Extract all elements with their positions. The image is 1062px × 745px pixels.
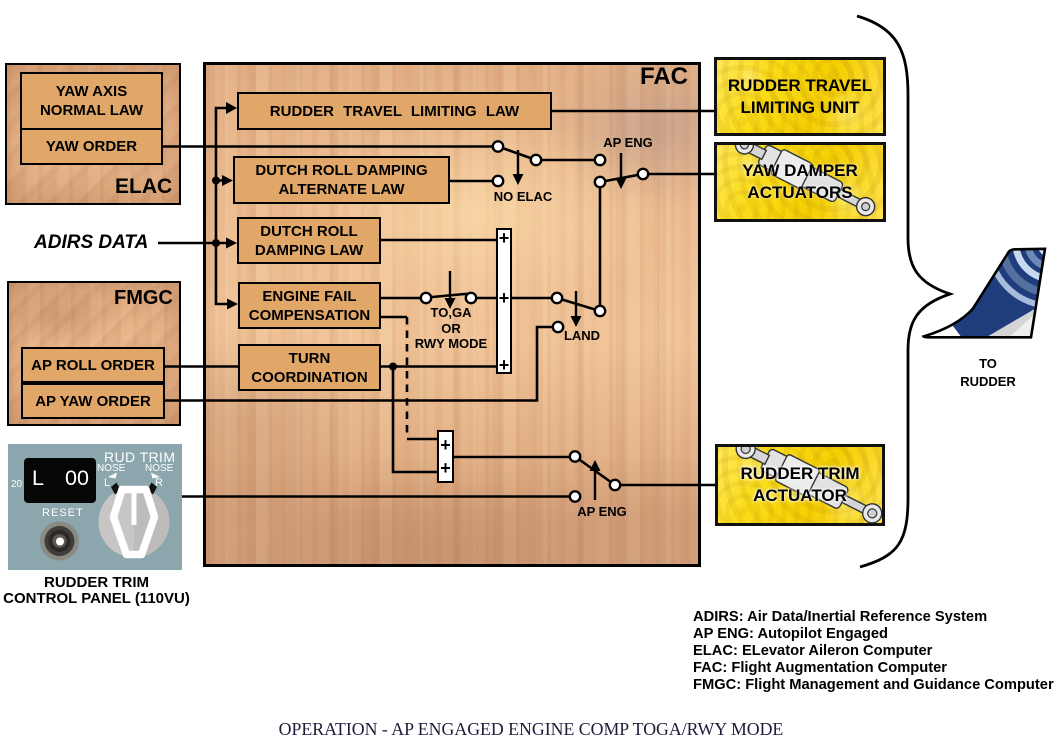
svg-text:+: + [499, 355, 510, 375]
svg-text:+: + [499, 288, 510, 308]
svg-text:+: + [440, 458, 451, 478]
svg-text:+: + [440, 435, 451, 455]
svg-text:+: + [499, 228, 510, 248]
